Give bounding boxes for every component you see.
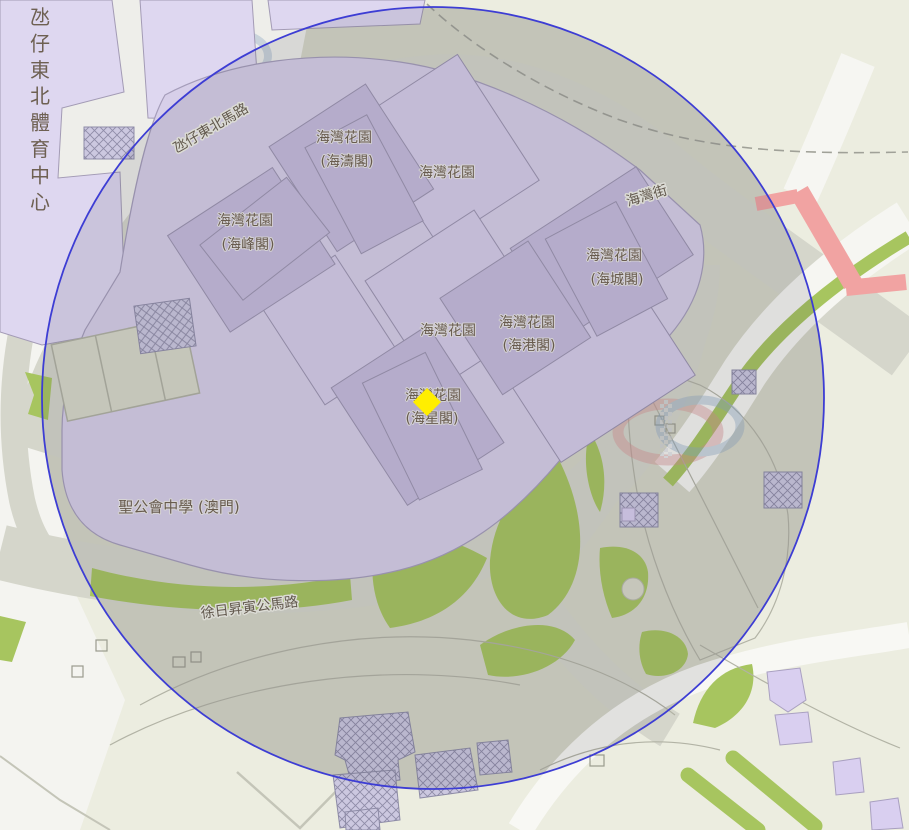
map-canvas[interactable]: 氹仔東北體育中心 氹仔東北馬路 海灣街 徐日昇寅公馬路 海灣花園 (海濤閣) 海… [0,0,909,830]
map-viewport[interactable]: 氹仔東北體育中心 氹仔東北馬路 海灣街 徐日昇寅公馬路 海灣花園 (海濤閣) 海… [0,0,909,830]
